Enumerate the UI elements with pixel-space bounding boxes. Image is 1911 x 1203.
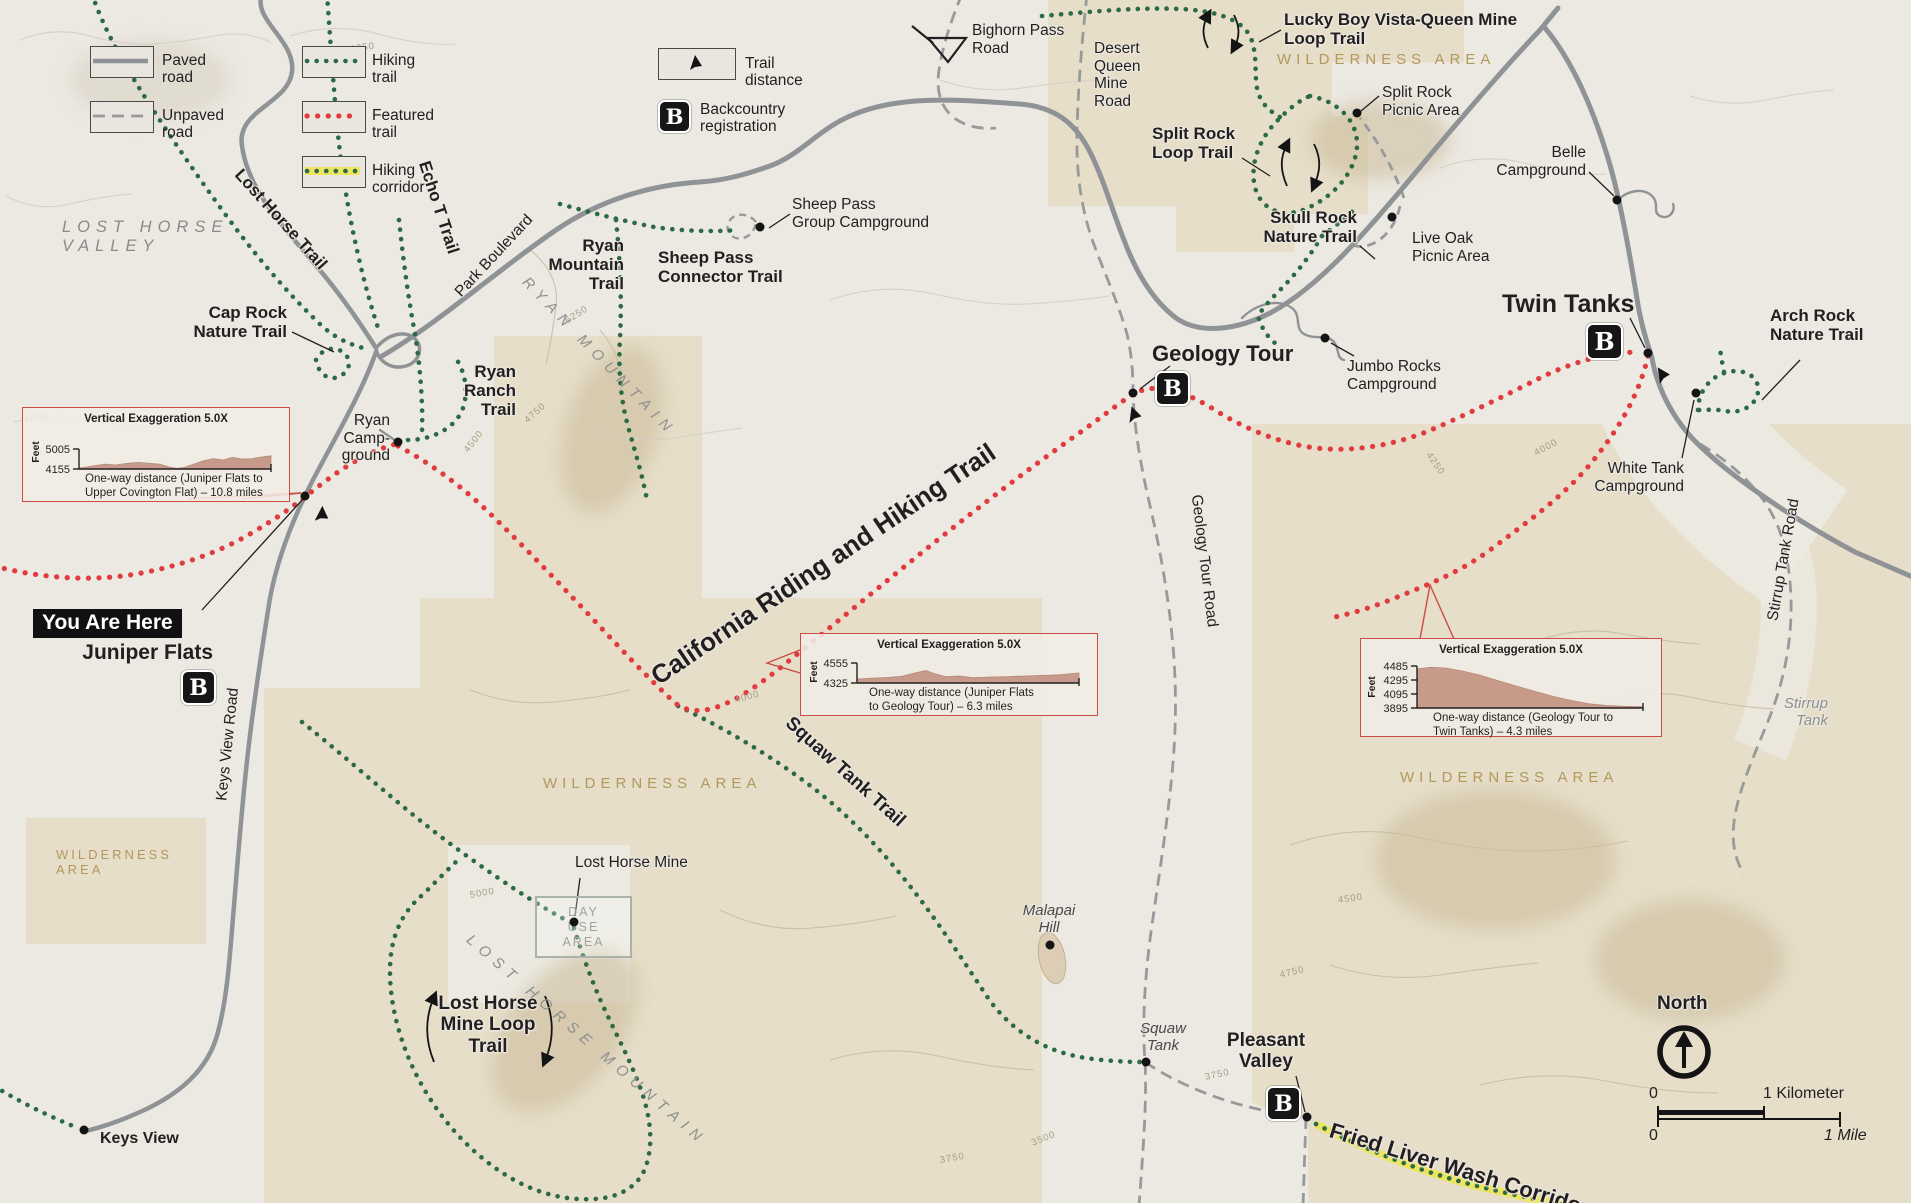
label-wilderness-area-east: WILDERNESS AREA: [1400, 770, 1618, 787]
svg-text:4555: 4555: [824, 658, 848, 670]
scale-one-kilometer: 1 Kilometer: [1763, 1085, 1844, 1103]
trail-distance-marker-twin-tanks: [1653, 364, 1672, 384]
poi-geology-tour-junction: [1129, 389, 1138, 398]
elevation-profile-geology-to-twin-tanks: Vertical Exaggeration 5.0X Feet 44854295…: [1360, 638, 1662, 737]
label-live-oak-picnic-area: Live OakPicnic Area: [1412, 230, 1490, 265]
profile-title: Vertical Exaggeration 5.0X: [23, 413, 289, 425]
label-geology-tour: Geology Tour: [1152, 342, 1293, 367]
trail-distance-marker-juniper: [315, 505, 331, 523]
label-lost-horse-mine: Lost Horse Mine: [575, 854, 688, 872]
legend-label-unpaved-road: Unpaved road: [162, 107, 224, 141]
label-ryan-mountain-trail: RyanMountainTrail: [548, 236, 624, 294]
label-arch-rock-nature-trail: Arch RockNature Trail: [1770, 306, 1864, 344]
contour-label: 4000: [734, 689, 761, 706]
label-wilderness-area-center: WILDERNESS AREA: [543, 776, 761, 793]
svg-text:4295: 4295: [1384, 675, 1408, 687]
legend-label-hiking-trail: Hiking trail: [372, 52, 415, 86]
label-malapai-hill: MalapaiHill: [1023, 903, 1076, 937]
contour-label: 4750: [522, 401, 548, 426]
contour-label: 3750: [1204, 1067, 1231, 1083]
label-bighorn-pass-road: Bighorn PassRoad: [972, 22, 1064, 57]
profile-title: Vertical Exaggeration 5.0X: [801, 639, 1097, 651]
label-stirrup-tank-road: Stirrup Tank Road: [1764, 497, 1803, 622]
backcountry-registration-icon-pleasant-valley: B: [1266, 1086, 1301, 1121]
svg-text:4325: 4325: [824, 678, 848, 688]
profile-caption: One-way distance (Geology Tour toTwin Ta…: [1433, 711, 1613, 740]
contour-label: 4500: [462, 428, 486, 455]
label-twin-tanks: Twin Tanks: [1502, 290, 1634, 318]
elevation-profile-juniper-to-covington: Vertical Exaggeration 5.0X Feet 50054155…: [22, 407, 290, 502]
scale-one-mile: 1 Mile: [1824, 1127, 1867, 1145]
label-cap-rock-nature-trail: Cap RockNature Trail: [193, 303, 287, 341]
svg-text:5005: 5005: [46, 444, 70, 456]
label-geology-tour-road: Geology Tour Road: [1187, 494, 1221, 628]
label-juniper-flats: Juniper Flats: [82, 641, 213, 665]
poi-split-rock-picnic-area: [1353, 109, 1362, 118]
north-label: North: [1657, 993, 1708, 1014]
legend-label-featured-trail: Featured trail: [372, 107, 434, 141]
backcountry-registration-icon-geology-tour: B: [1155, 371, 1190, 406]
elevation-profile-juniper-to-geology: Vertical Exaggeration 5.0X Feet 45554325…: [800, 633, 1098, 716]
legend-swatch-unpaved-road: [90, 101, 154, 133]
svg-text:4095: 4095: [1384, 689, 1408, 701]
contour-label: 3500: [1030, 1129, 1057, 1149]
label-lost-horse-valley: LOST HORSEVALLEY: [62, 218, 228, 255]
svg-text:4485: 4485: [1384, 661, 1408, 673]
poi-belle-campground: [1613, 196, 1622, 205]
label-wilderness-area-ne: WILDERNESS AREA: [1277, 52, 1495, 69]
legend-label-hiking-corridor: Hiking corridor: [372, 162, 425, 196]
trail-distance-marker-geology: [1127, 405, 1143, 423]
contour-label: 3750: [939, 1151, 966, 1166]
poi-keys-view: [80, 1126, 89, 1135]
scale-zero-mile: 0: [1649, 1127, 1658, 1145]
profile-caption: One-way distance (Juniper Flats toUpper …: [85, 472, 263, 501]
label-white-tank-campground: White TankCampground: [1594, 460, 1684, 495]
backcountry-registration-icon-twin-tanks: B: [1586, 323, 1623, 360]
label-skull-rock-nature-trail: Skull RockNature Trail: [1263, 208, 1357, 246]
label-fried-liver-wash-corridor: Fried Liver Wash Corridor: [1326, 1119, 1592, 1203]
profile-chart: 45554325: [811, 652, 1087, 688]
label-keys-view-road: Keys View Road: [213, 687, 242, 802]
you-are-here-banner: You Are Here: [33, 609, 182, 638]
poi-jumbo-rocks-campground: [1321, 334, 1330, 343]
legend-swatch-trail-distance: [658, 48, 736, 80]
label-keys-view: Keys View: [100, 1130, 179, 1148]
profile-caption: One-way distance (Juniper Flatsto Geolog…: [869, 686, 1034, 715]
contour-label: 4500: [1337, 892, 1363, 906]
contour-label: 4000: [1532, 437, 1559, 459]
poi-sheep-pass-group-campground: [756, 223, 765, 232]
label-belle-campground: BelleCampground: [1496, 144, 1586, 179]
profile-chart: 4485429540953895: [1371, 657, 1651, 713]
svg-text:4155: 4155: [46, 464, 70, 474]
profile-title: Vertical Exaggeration 5.0X: [1361, 644, 1661, 656]
label-sheep-pass-group-campground: Sheep PassGroup Campground: [792, 196, 929, 231]
label-pleasant-valley: PleasantValley: [1227, 1030, 1305, 1073]
label-split-rock-loop-trail: Split RockLoop Trail: [1152, 124, 1235, 162]
legend-swatch-featured-trail: [302, 101, 366, 133]
contour-label: 4250: [1423, 450, 1446, 477]
legend-backcountry-icon: B: [658, 100, 691, 133]
poi-twin-tanks-junction: [1644, 349, 1653, 358]
poi-white-tank-campground: [1692, 389, 1701, 398]
label-ryan-ranch-trail: RyanRanchTrail: [464, 362, 516, 420]
label-desert-queen-mine-road: DesertQueenMineRoad: [1094, 40, 1141, 110]
label-wilderness-area-west: WILDERNESSAREA: [56, 848, 172, 877]
svg-text:3895: 3895: [1384, 703, 1408, 713]
poi-live-oak-picnic-area: [1388, 213, 1397, 222]
label-ryan-mountain: RYAN MOUNTAIN: [518, 275, 679, 441]
poi-lost-horse-mine: [570, 918, 579, 927]
poi-ryan-campground: [394, 438, 403, 447]
legend-label-paved-road: Paved road: [162, 52, 206, 86]
label-squaw-tank-trail: Squaw Tank Trail: [781, 713, 910, 832]
label-day-use-area: DAYUSEAREA: [535, 896, 632, 958]
legend-swatch-paved-road: [90, 46, 154, 78]
label-stirrup-tank: StirrupTank: [1784, 696, 1828, 730]
label-layer: LOST HORSEVALLEYLost Horse TrailEcho T T…: [0, 0, 1911, 1203]
label-squaw-tank: SquawTank: [1140, 1021, 1186, 1055]
label-split-rock-picnic-area: Split RockPicnic Area: [1382, 84, 1460, 119]
legend-swatch-hiking-corridor: [302, 156, 366, 188]
label-sheep-pass-connector-trail: Sheep PassConnector Trail: [658, 248, 783, 286]
legend-swatch-hiking-trail: [302, 46, 366, 78]
scale-zero-km: 0: [1649, 1085, 1658, 1103]
poi-squaw-tank: [1142, 1058, 1151, 1067]
poi-pleasant-valley: [1303, 1113, 1312, 1122]
contour-label: 4750: [1279, 964, 1306, 981]
legend-label-trail-distance: Trail distance: [745, 55, 803, 89]
label-ryan-campground: RyanCamp-ground: [342, 412, 390, 465]
label-jumbo-rocks-campground: Jumbo RocksCampground: [1347, 358, 1441, 393]
backcountry-registration-icon-juniper-flats: B: [181, 670, 216, 705]
label-lost-horse-mine-loop-trail: Lost HorseMine LoopTrail: [438, 993, 537, 1057]
poi-malapai-hill: [1046, 941, 1055, 950]
poi-juniper-flats-trailhead: [301, 492, 310, 501]
contour-label: 5000: [469, 886, 496, 901]
trail-map: Paved road Unpaved road Hiking trail Fea…: [0, 0, 1911, 1203]
profile-chart: 50054155: [33, 430, 279, 474]
label-lucky-boy-vista-queen-mine-loop-trail: Lucky Boy Vista-Queen MineLoop Trail: [1284, 10, 1517, 48]
legend-label-backcountry-registration: Backcountry registration: [700, 101, 785, 135]
